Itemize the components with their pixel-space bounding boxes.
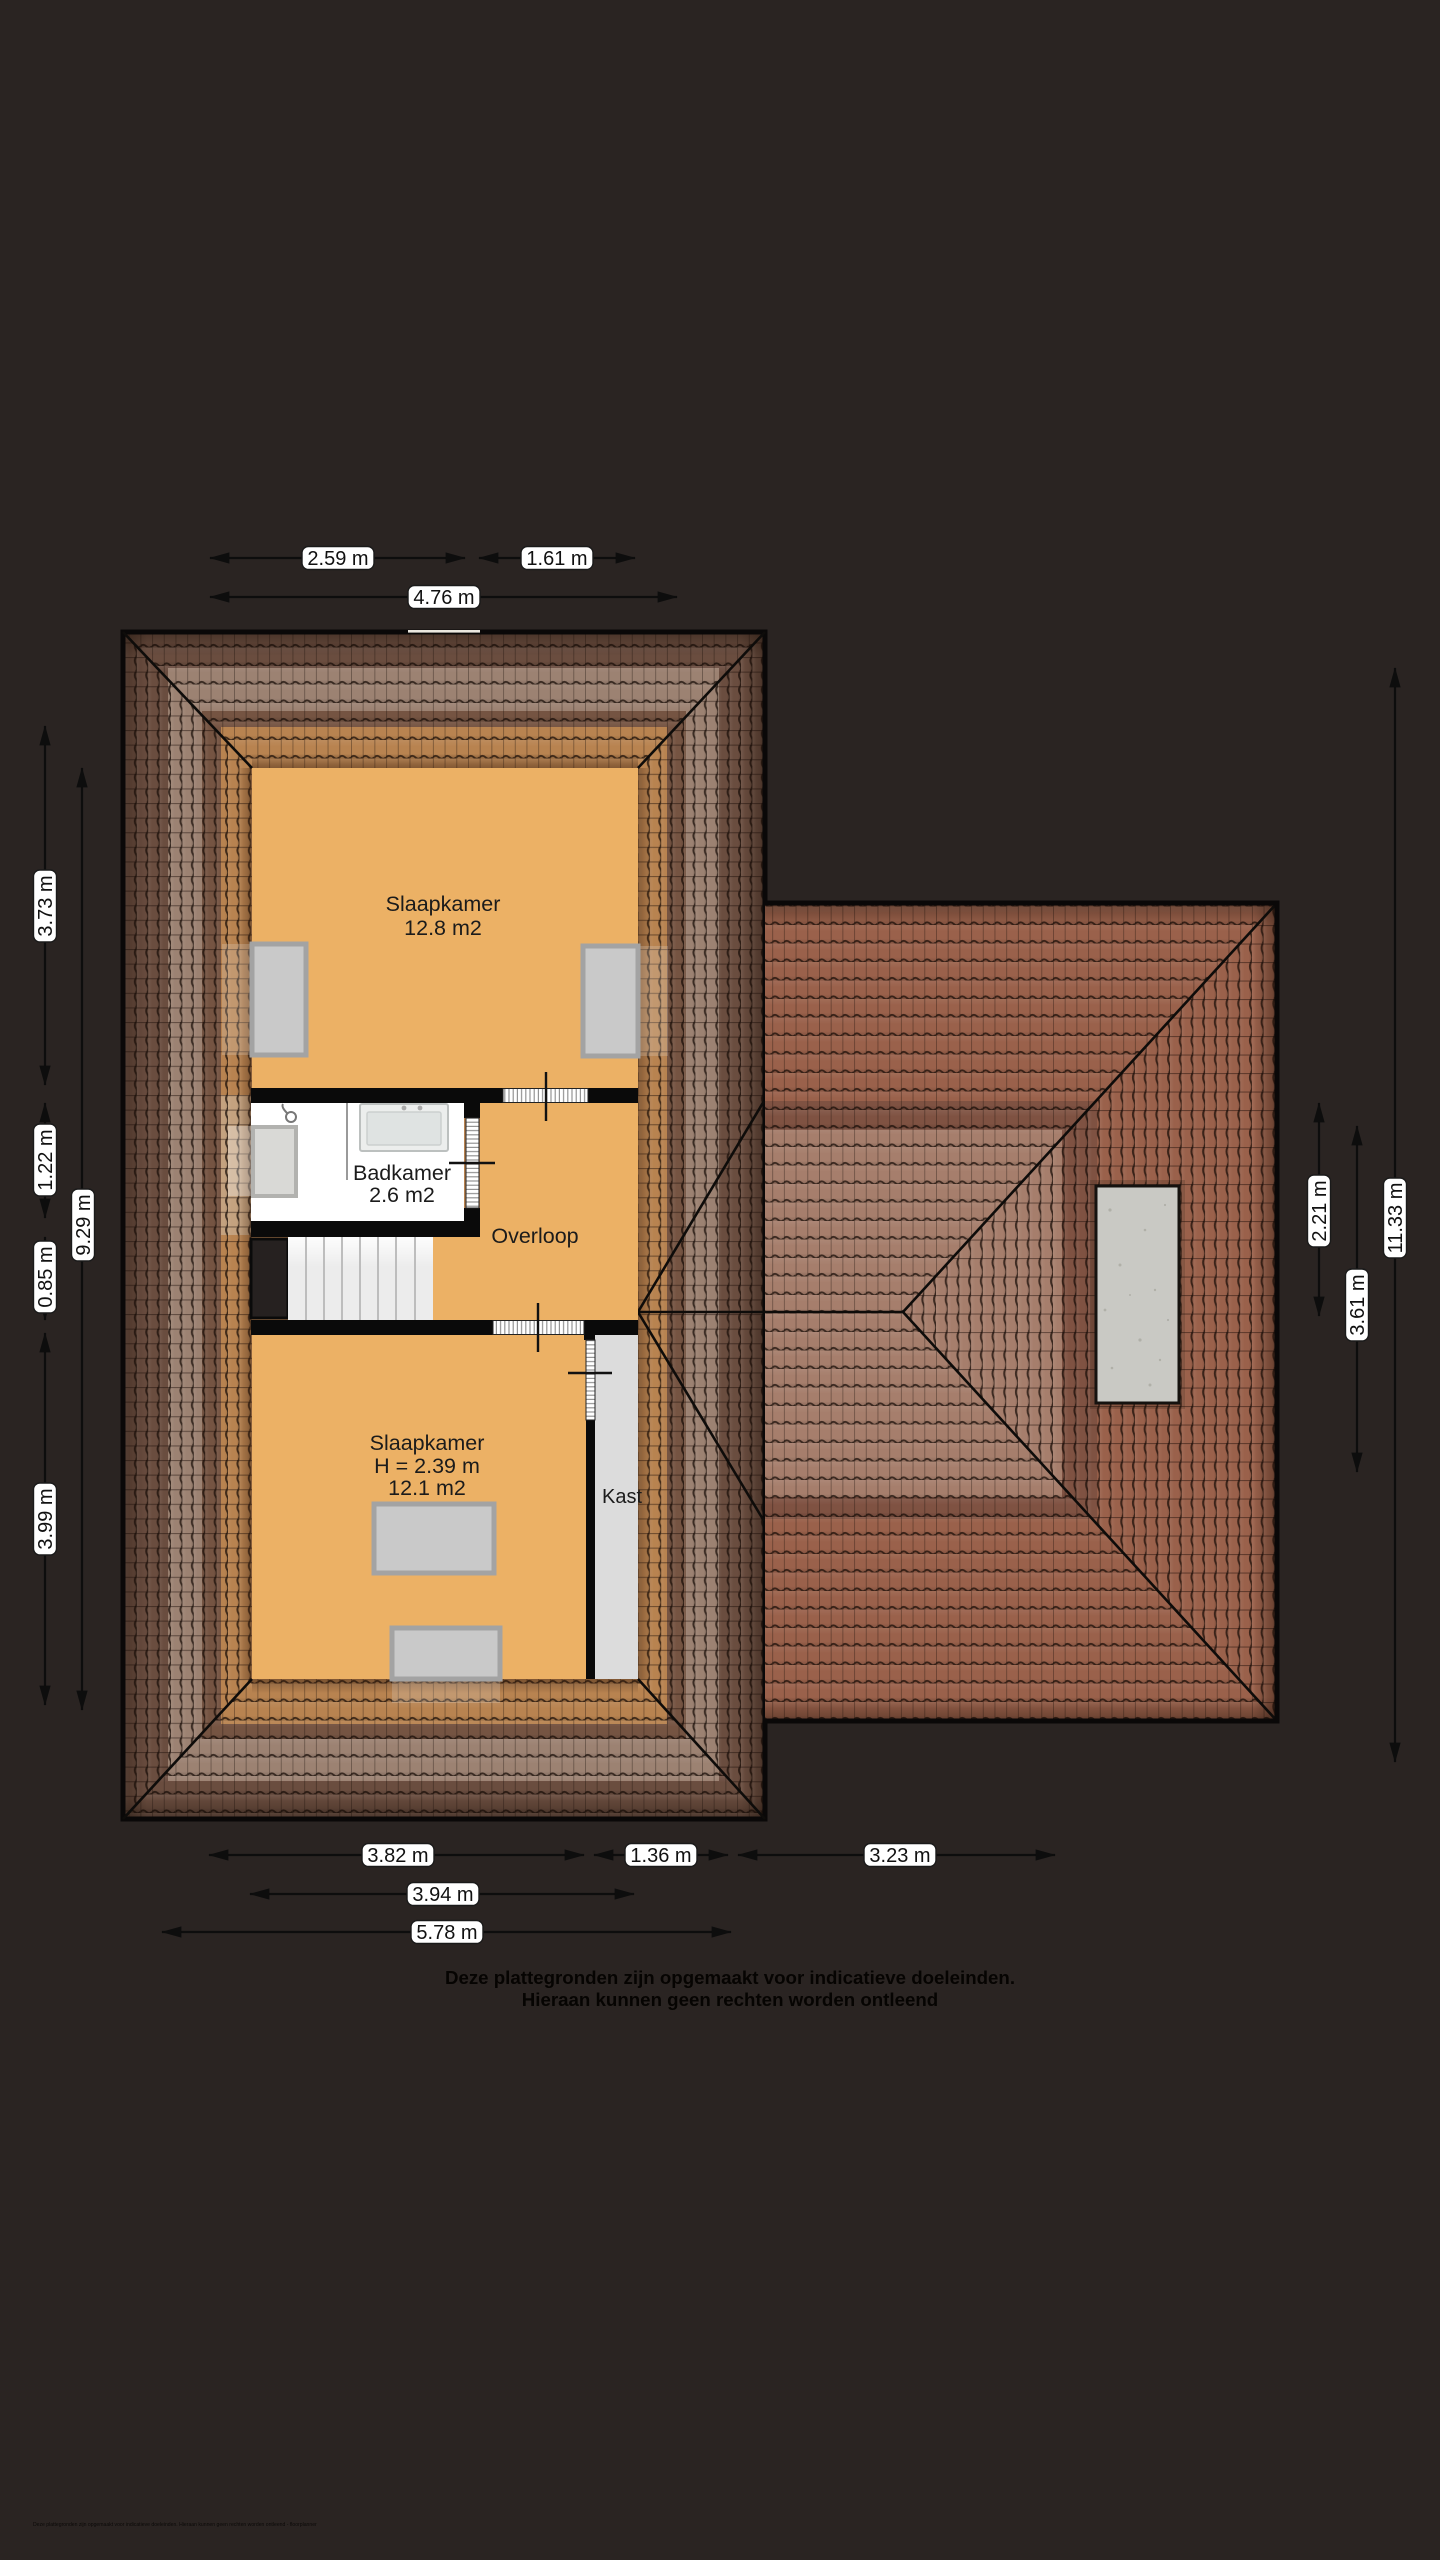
svg-text:3.23 m: 3.23 m <box>869 1845 930 1867</box>
svg-text:9.29 m: 9.29 m <box>73 1194 95 1255</box>
svg-text:1.61 m: 1.61 m <box>526 548 587 570</box>
svg-text:2.6 m2: 2.6 m2 <box>369 1183 435 1207</box>
svg-text:Slaapkamer: Slaapkamer <box>386 892 501 916</box>
svg-text:Overloop: Overloop <box>491 1224 578 1248</box>
svg-text:3.94 m: 3.94 m <box>412 1884 473 1906</box>
svg-text:4.76 m: 4.76 m <box>413 587 474 609</box>
svg-text:3.61 m: 3.61 m <box>1347 1274 1369 1335</box>
svg-text:3.82 m: 3.82 m <box>367 1845 428 1867</box>
svg-text:12.8 m2: 12.8 m2 <box>404 916 482 940</box>
svg-text:Slaapkamer: Slaapkamer <box>370 1431 485 1455</box>
svg-text:2.21 m: 2.21 m <box>1309 1180 1331 1241</box>
svg-text:Kast: Kast <box>602 1486 642 1508</box>
svg-text:Badkamer: Badkamer <box>353 1161 451 1185</box>
svg-text:Deze plattegronden zijn opgema: Deze plattegronden zijn opgemaakt voor i… <box>33 2522 317 2528</box>
svg-text:0.85 m: 0.85 m <box>35 1246 57 1307</box>
svg-text:11.33 m: 11.33 m <box>1385 1183 1407 1254</box>
svg-text:1.22 m: 1.22 m <box>35 1129 57 1190</box>
svg-text:2.59 m: 2.59 m <box>307 548 368 570</box>
svg-text:1.36 m: 1.36 m <box>630 1845 691 1867</box>
svg-text:3.99 m: 3.99 m <box>35 1488 57 1549</box>
svg-text:5.78 m: 5.78 m <box>416 1922 477 1944</box>
svg-text:H = 2.39 m: H = 2.39 m <box>374 1454 480 1478</box>
svg-text:Hieraan kunnen geen rechten wo: Hieraan kunnen geen rechten worden ontle… <box>522 1989 938 2010</box>
svg-text:Deze plattegronden zijn opgema: Deze plattegronden zijn opgemaakt voor i… <box>445 1967 1015 1988</box>
svg-text:12.1 m2: 12.1 m2 <box>388 1476 466 1500</box>
svg-text:3.73 m: 3.73 m <box>35 875 57 936</box>
